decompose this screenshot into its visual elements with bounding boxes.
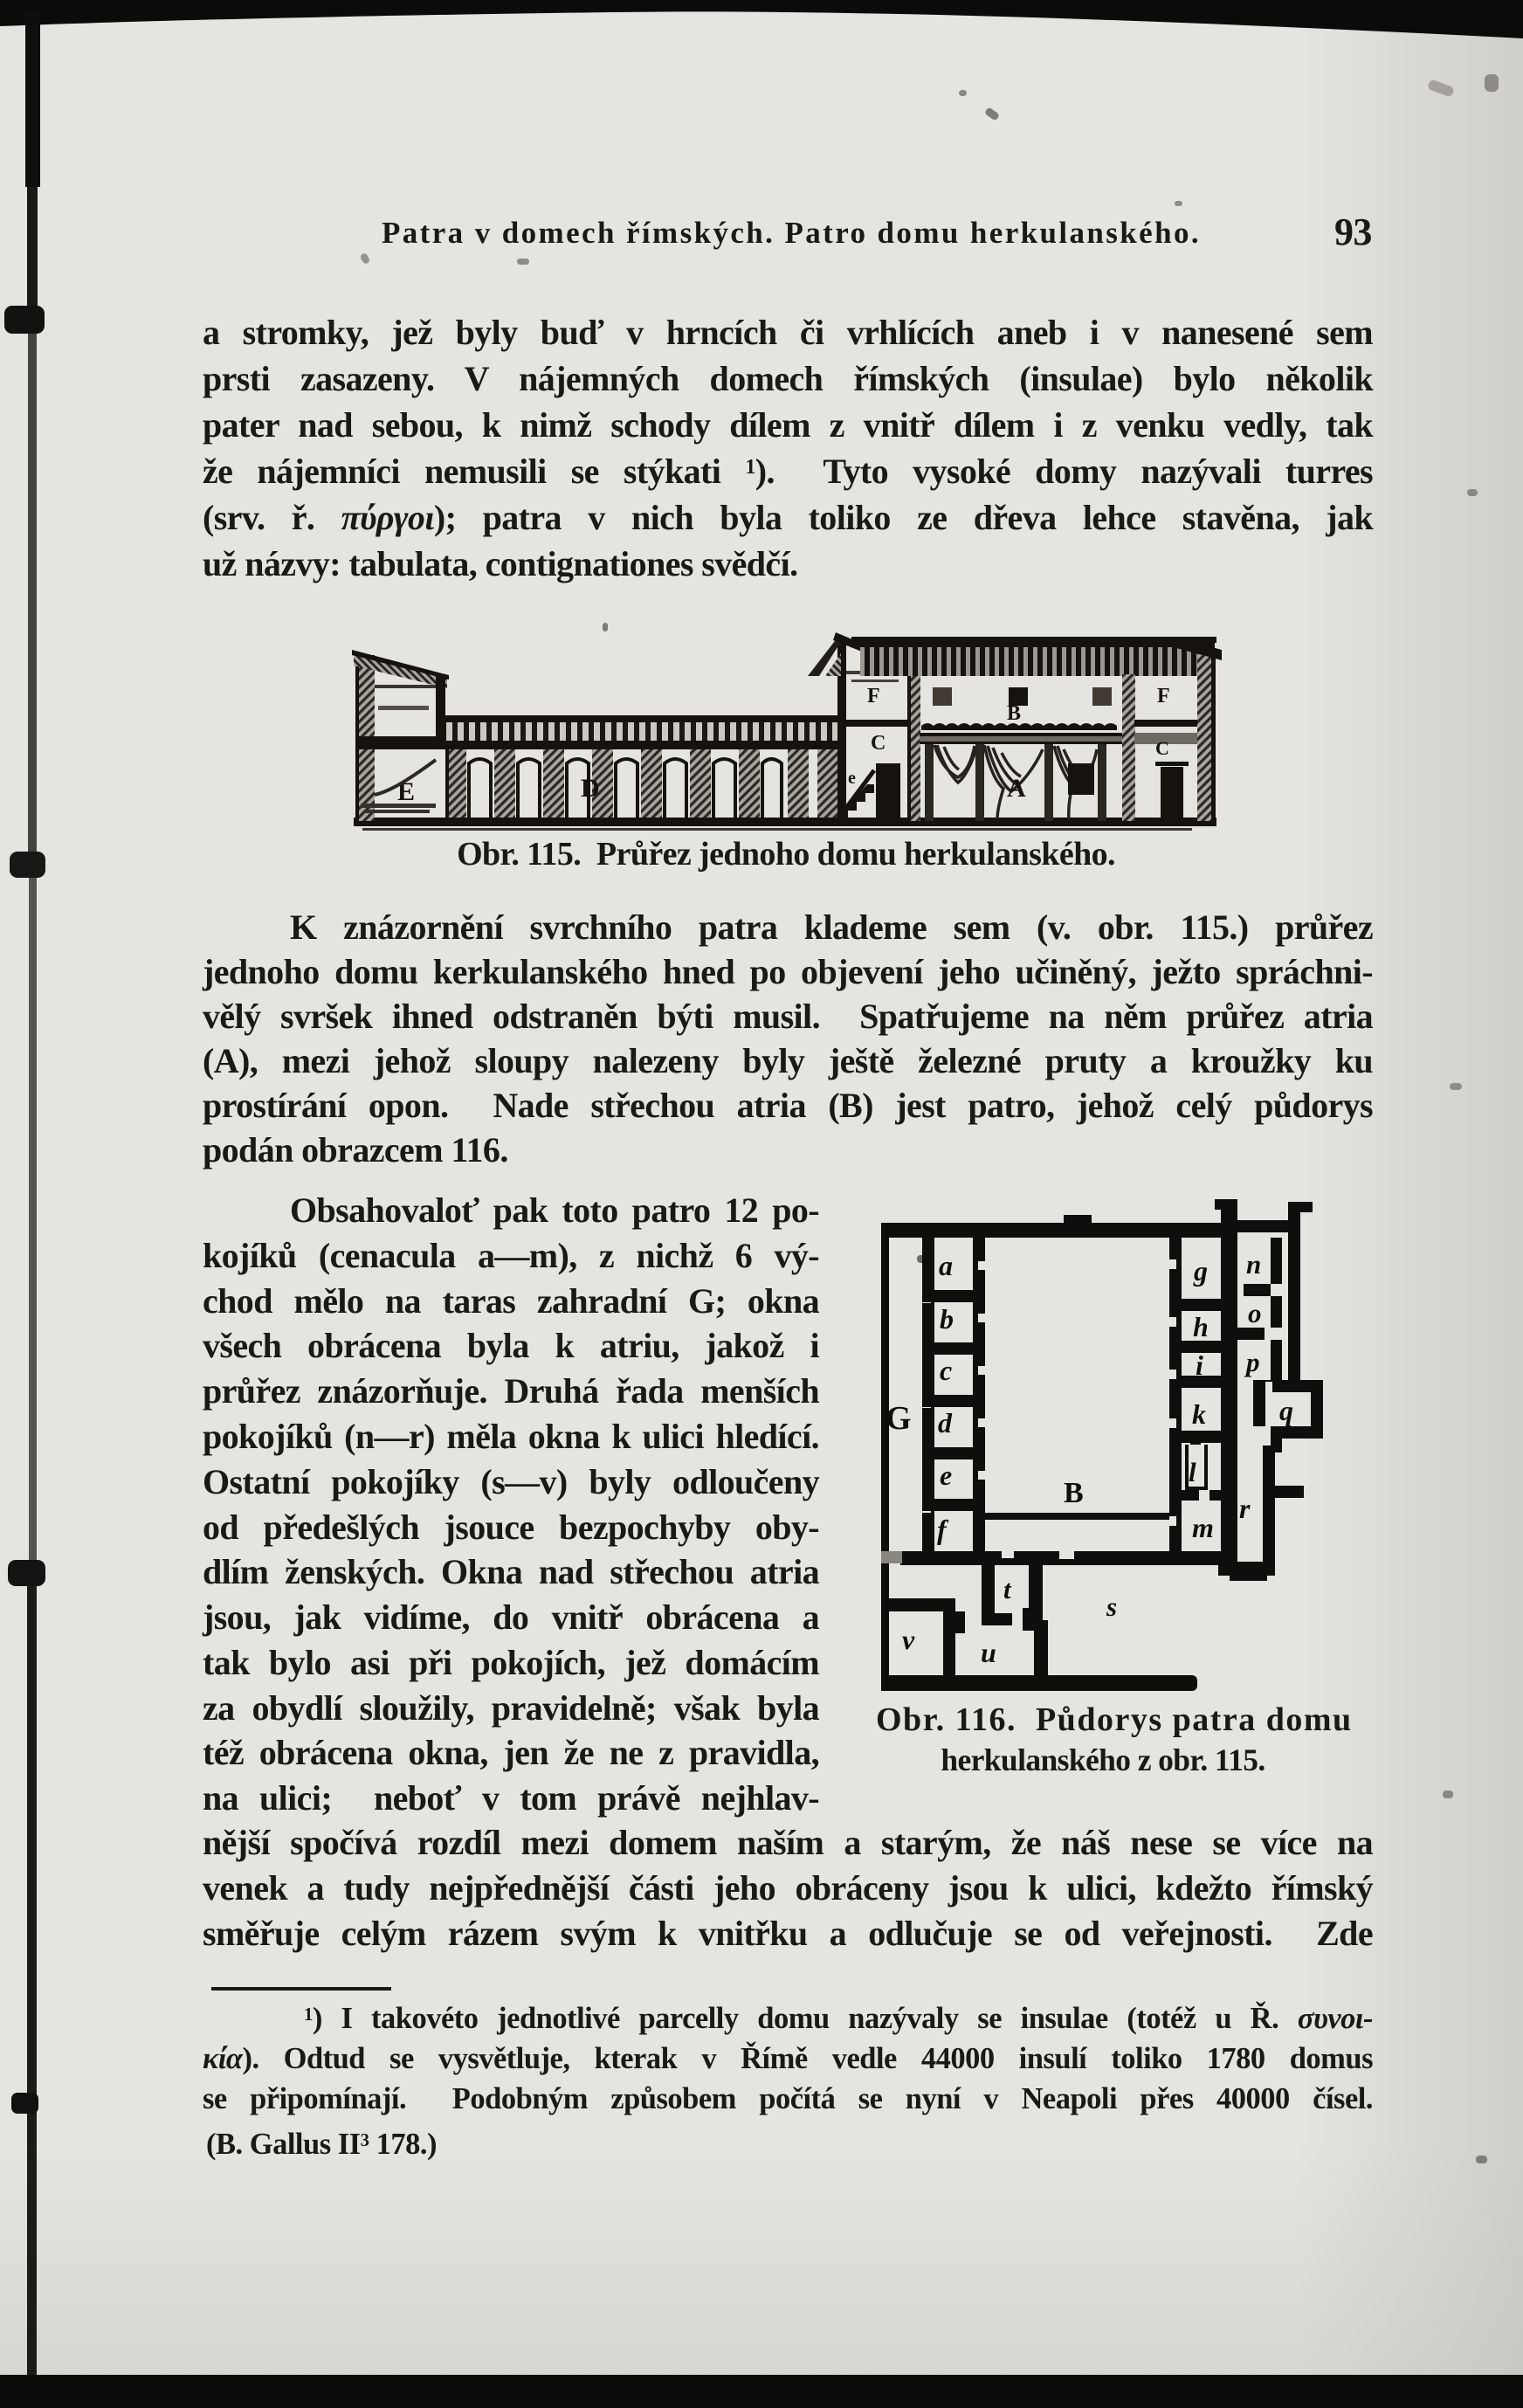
svg-text:D: D [581, 774, 600, 803]
svg-text:e: e [848, 769, 856, 788]
svg-text:G: G [886, 1400, 912, 1437]
svg-text:a: a [939, 1250, 953, 1281]
svg-text:C: C [1155, 737, 1169, 759]
svg-text:d: d [938, 1407, 953, 1439]
svg-text:r: r [1239, 1493, 1251, 1524]
svg-text:m: m [1192, 1512, 1214, 1543]
svg-text:l: l [1189, 1457, 1196, 1487]
svg-text:q: q [1279, 1395, 1293, 1426]
svg-text:h: h [1193, 1311, 1209, 1342]
svg-text:c: c [940, 1355, 952, 1386]
svg-text:f: f [937, 1514, 949, 1545]
svg-text:u: u [981, 1637, 996, 1668]
svg-text:F: F [1157, 685, 1170, 707]
svg-text:o: o [1248, 1298, 1262, 1328]
svg-text:e: e [940, 1459, 952, 1491]
svg-text:t: t [1003, 1574, 1012, 1604]
svg-text:g: g [1193, 1255, 1208, 1287]
svg-text:B: B [1064, 1477, 1084, 1509]
svg-text:C: C [871, 732, 886, 755]
svg-text:F: F [867, 685, 880, 707]
svg-text:B: B [1007, 702, 1021, 725]
svg-text:s: s [1106, 1591, 1117, 1622]
svg-text:p: p [1244, 1347, 1260, 1377]
svg-text:b: b [940, 1303, 954, 1335]
svg-text:v: v [902, 1624, 915, 1655]
svg-text:n: n [1246, 1249, 1261, 1280]
svg-text:A: A [1007, 774, 1026, 803]
svg-text:k: k [1192, 1398, 1206, 1430]
svg-text:i: i [1196, 1349, 1203, 1381]
